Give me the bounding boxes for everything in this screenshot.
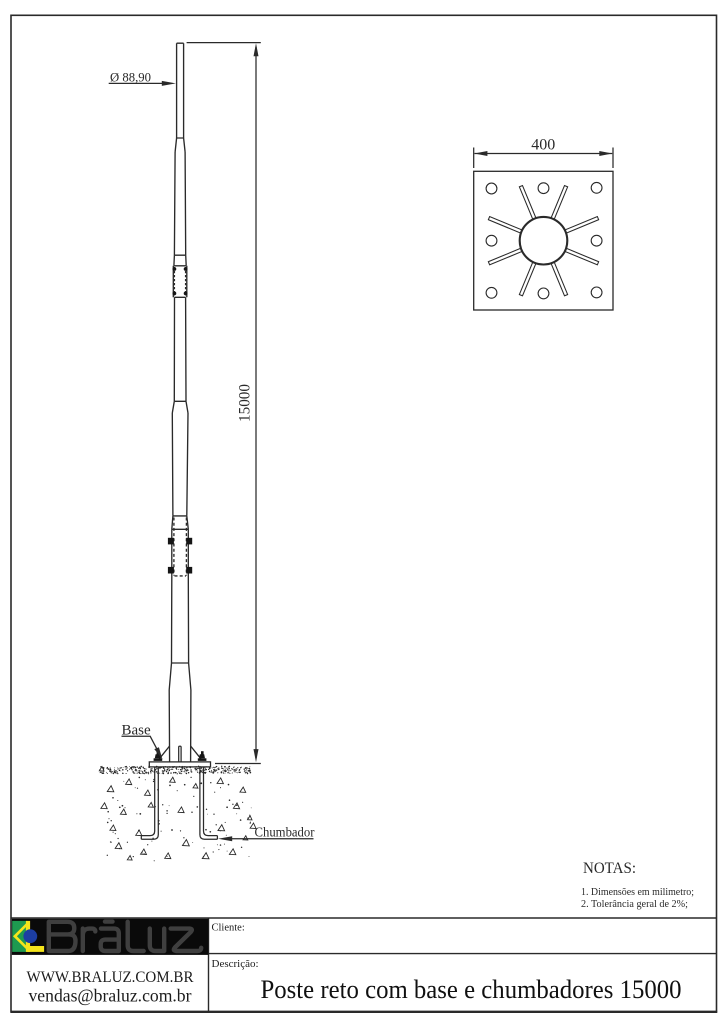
svg-text:vendas@braluz.com.br: vendas@braluz.com.br [29,986,192,1006]
svg-text:15000: 15000 [237,384,254,422]
svg-text:400: 400 [531,137,555,154]
svg-text:Cliente:: Cliente: [212,923,245,934]
svg-text:WWW.BRALUZ.COM.BR: WWW.BRALUZ.COM.BR [27,969,195,986]
svg-text:1. Dimensões em milimetro;: 1. Dimensões em milimetro; [581,887,694,898]
svg-text:Poste reto com base e chumbado: Poste reto com base e chumbadores 15000 [261,975,682,1004]
svg-text:2. Tolerância geral de 2%;: 2. Tolerância geral de 2%; [581,899,688,910]
svg-text:NOTAS:: NOTAS: [583,860,636,877]
svg-text:Ø 88,90: Ø 88,90 [110,71,151,85]
svg-text:Descrição:: Descrição: [212,958,259,970]
